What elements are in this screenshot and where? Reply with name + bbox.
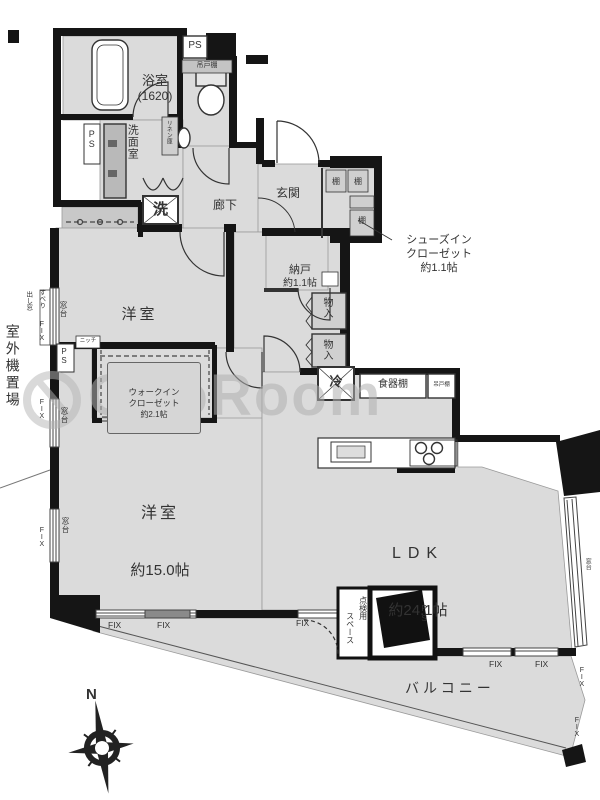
fix-label-bottom-2: FIX xyxy=(157,620,170,630)
fix-label-bottom-1: FIX xyxy=(108,620,121,630)
fix-label-right-1: FIX xyxy=(577,667,585,688)
corner-pillar xyxy=(556,430,600,496)
ps-label-top: PS xyxy=(183,40,207,52)
closet-label-1: 物入 xyxy=(320,297,332,319)
niche-label: ニッチ xyxy=(75,338,101,345)
ldk-label: LDK 約24.1帖 xyxy=(362,506,474,639)
awning-window-label-2: 出し窓 xyxy=(24,291,32,311)
washing-machine-label: 洗 xyxy=(143,201,178,219)
ps-label-mid: PS xyxy=(59,347,69,365)
corner-mark xyxy=(8,30,19,43)
hanging-cupboard-label-toilet: 吊戸棚 xyxy=(182,62,232,70)
inspection-label-1: 点検用 xyxy=(358,596,368,620)
closet-label-2: 物入 xyxy=(320,339,332,361)
shelf-label-3: 棚 xyxy=(352,216,372,226)
window-sill-label-3: 窓台 xyxy=(61,517,70,534)
hand-basin xyxy=(178,128,190,148)
ps-label-bottom: PS xyxy=(419,603,429,623)
shelf-label-1: 棚 xyxy=(327,177,345,187)
ps-label-left: PS xyxy=(86,129,97,149)
compass-icon xyxy=(62,696,140,798)
fix-label-left-3: FIX xyxy=(37,527,45,548)
window-sill-label-2: 窓台 xyxy=(60,407,69,424)
west-room-large-label: 洋室 約15.0帖 xyxy=(105,466,215,599)
hallway-label: 廊下 xyxy=(203,198,247,212)
bathroom-label: 浴室(1620) xyxy=(120,42,190,119)
awning-window-label-1: すべり xyxy=(37,289,45,309)
wic-label: ウォークインクローゼット約2.1帖 xyxy=(107,362,201,434)
fix-label-bottom-5: FIX xyxy=(535,659,548,669)
inspection-label-2: スペース xyxy=(345,612,355,644)
balcony-label: バルコニー xyxy=(405,680,495,697)
shoes-closet-label: シューズインクローゼット約1.1帖 xyxy=(384,204,494,290)
entrance-label: 玄関 xyxy=(266,186,310,200)
fix-label-bottom-4: FIX xyxy=(489,659,502,669)
storage-label: 納戸約1.1帖 xyxy=(272,238,328,303)
entrance-door xyxy=(277,121,319,163)
fix-label-left-2: FIX xyxy=(37,399,45,420)
hanging-cupboard-label-kitchen: 吊戸棚 xyxy=(428,382,455,389)
refrigerator-label: 冷 xyxy=(318,374,354,390)
floor-plan: GooRoom 浴室(1620) PS 吊戸棚 洗面室 PS リネン庫 洗 廊下… xyxy=(0,0,600,800)
cupboard-label: 食器棚 xyxy=(360,379,426,391)
toilet-bowl xyxy=(198,85,224,115)
window-sill-label-1: 窓台 xyxy=(59,301,68,318)
outdoor-unit-label: 室外機置場 xyxy=(4,324,21,409)
fix-label-bottom-3: FIX xyxy=(296,618,309,628)
linen-label: リネン庫 xyxy=(164,120,171,144)
window-sill-label-4: 窓台 xyxy=(583,558,590,570)
compass-north-label: N xyxy=(86,686,97,704)
fix-label-right-2: FIX xyxy=(572,717,580,738)
vanity-counter xyxy=(104,124,126,198)
outdoor-unit-boundary xyxy=(0,470,50,488)
fix-label-left-1: FIX xyxy=(37,321,45,342)
shelf-label-2: 棚 xyxy=(349,177,367,187)
washroom-label: 洗面室 xyxy=(125,124,138,160)
